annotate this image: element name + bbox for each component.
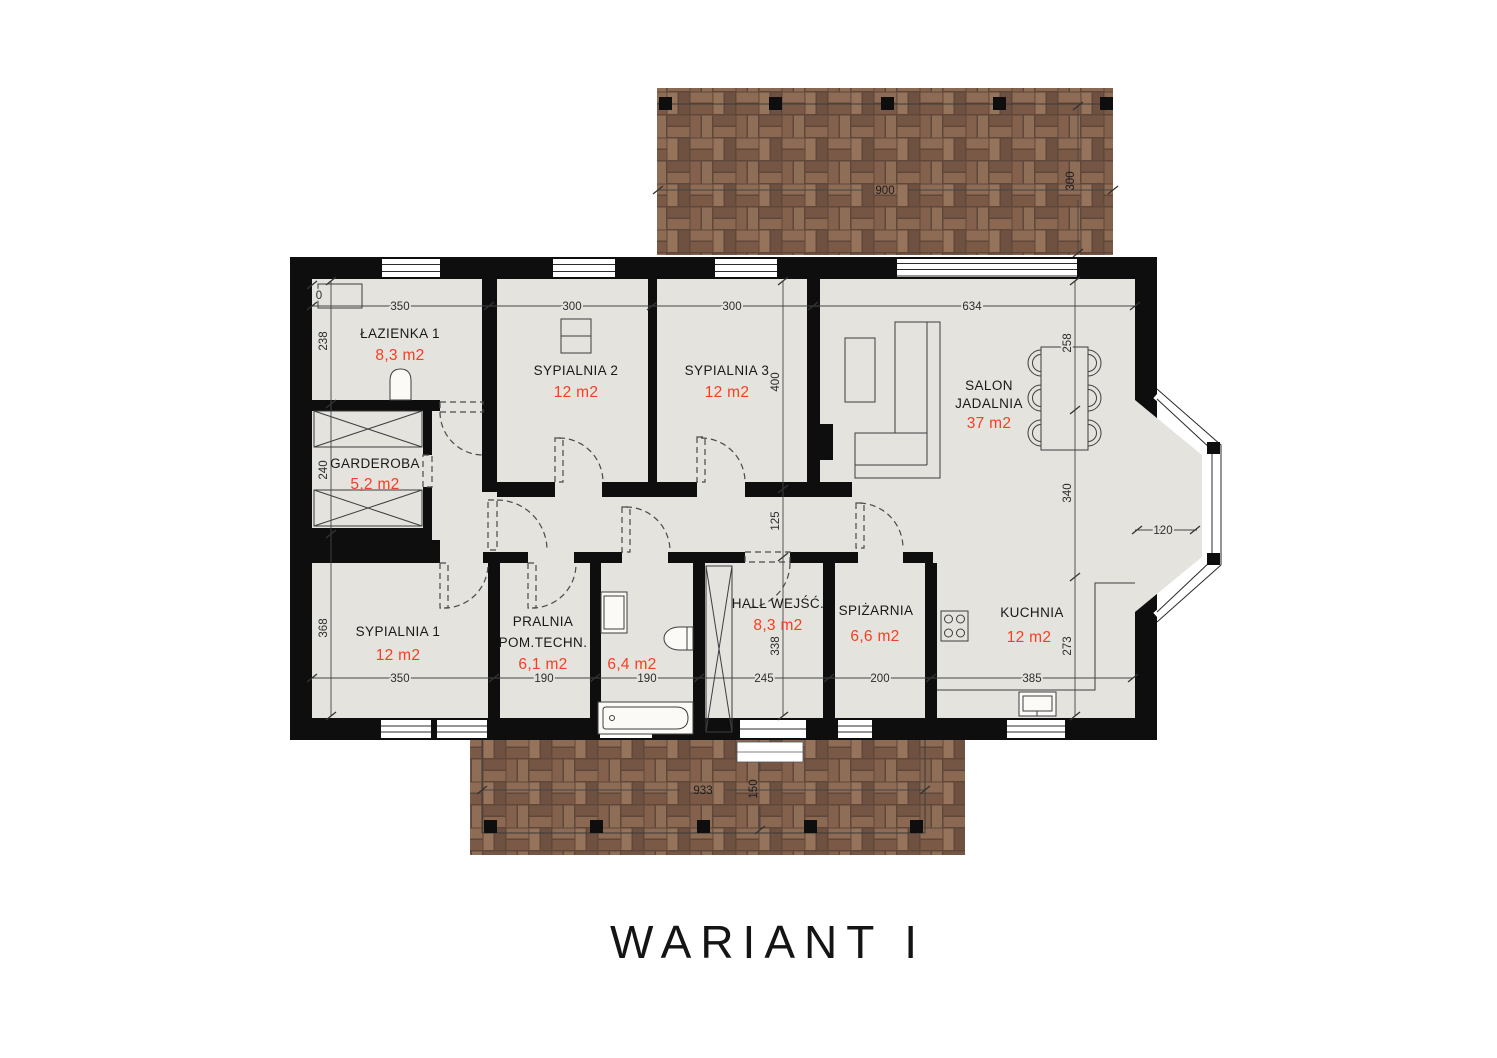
kitchen-sink	[1019, 692, 1056, 716]
room-area: 6,6 m2	[850, 628, 899, 645]
room-area: 37 m2	[967, 415, 1012, 432]
origin-marker: 0	[316, 290, 322, 302]
room-name: ŁAZIENKA 1	[360, 326, 440, 341]
dimension-label: 125	[770, 511, 782, 530]
terrace-post	[881, 97, 894, 110]
dimension-label: 245	[754, 673, 773, 685]
dimension-label: 258	[1062, 333, 1074, 352]
terrace-post	[484, 820, 497, 833]
plan-title: WARIANT I	[610, 916, 926, 968]
room-name: SALON	[965, 378, 1013, 393]
room-name: KUCHNIA	[1000, 605, 1064, 620]
window	[437, 720, 487, 738]
terrace-post	[697, 820, 710, 833]
dimension-label: 300	[562, 301, 581, 313]
dimension-label: 300	[722, 301, 741, 313]
terrace-post	[804, 820, 817, 833]
floor	[312, 279, 1135, 718]
toilet	[390, 369, 411, 400]
dimension-label: 238	[318, 331, 330, 350]
room-name: SYPIALNIA 1	[356, 624, 441, 639]
room-name: SYPIALNIA 3	[685, 363, 770, 378]
floor-plan-drawing: 900 300 933 150	[0, 0, 1497, 1058]
dimension-label: 150	[748, 779, 760, 798]
room-name: HALL WEJŚĆ.	[732, 596, 824, 611]
bathtub	[598, 702, 693, 734]
terrace-post	[769, 97, 782, 110]
window	[381, 720, 431, 738]
dimension-label: 385	[1022, 673, 1041, 685]
room-area: 6,4 m2	[607, 656, 656, 673]
room-name: SPIŻARNIA	[839, 603, 914, 618]
dimension-label: 340	[1062, 483, 1074, 502]
window	[553, 259, 615, 277]
bay-window-corner	[1207, 442, 1220, 454]
window	[382, 259, 440, 277]
terrace-post	[659, 97, 672, 110]
room-area: 5,2 m2	[350, 476, 399, 493]
dimension-label: 190	[637, 673, 656, 685]
dimension-label: 368	[318, 618, 330, 637]
dimension-label: 634	[962, 301, 982, 313]
room-area: 8,3 m2	[753, 617, 802, 634]
terrace-post	[910, 820, 923, 833]
dimension-label: 350	[390, 301, 409, 313]
room-name: PRALNIA	[513, 614, 574, 629]
terrace-sliding-door	[897, 259, 1077, 277]
terrace-bottom: 933 150	[470, 740, 965, 855]
terrace-top-paving	[657, 88, 1113, 255]
room-name: JADALNIA	[955, 396, 1023, 411]
washbasin	[601, 592, 627, 633]
bay-window-corner	[1207, 553, 1220, 565]
room-area: 6,1 m2	[518, 656, 567, 673]
room-area: 12 m2	[705, 384, 750, 401]
toilet	[664, 627, 693, 650]
dimension-label: 273	[1062, 636, 1074, 655]
dimension-label: 120	[1153, 525, 1172, 537]
fireplace	[820, 424, 833, 460]
dimension-label: 933	[693, 785, 712, 797]
terrace-post	[1100, 97, 1113, 110]
terrace-post	[993, 97, 1006, 110]
room-name: SYPIALNIA 2	[534, 363, 619, 378]
room-area: 12 m2	[376, 647, 421, 664]
dimension-label: 400	[770, 372, 782, 391]
room-name: POM.TECHN.	[499, 635, 588, 650]
terrace-top: 900 300	[653, 88, 1118, 257]
room-area: 12 m2	[554, 384, 599, 401]
floor-plan-page: 900 300 933 150	[0, 0, 1497, 1058]
dimension-label: 200	[870, 673, 889, 685]
dimension-label: 350	[390, 673, 409, 685]
dimension-label: 300	[1065, 171, 1077, 190]
dimension-label: 338	[770, 636, 782, 655]
room-area: 12 m2	[1007, 629, 1052, 646]
window	[838, 720, 872, 738]
dimension-label: 190	[534, 673, 553, 685]
room-area: 8,3 m2	[375, 347, 424, 364]
room-name: GARDEROBA	[330, 456, 420, 471]
dimension-label: 240	[318, 460, 330, 479]
dimension-label: 900	[875, 185, 894, 197]
window	[715, 259, 777, 277]
terrace-post	[590, 820, 603, 833]
window	[1007, 720, 1065, 738]
terrace-bottom-paving	[470, 740, 965, 855]
